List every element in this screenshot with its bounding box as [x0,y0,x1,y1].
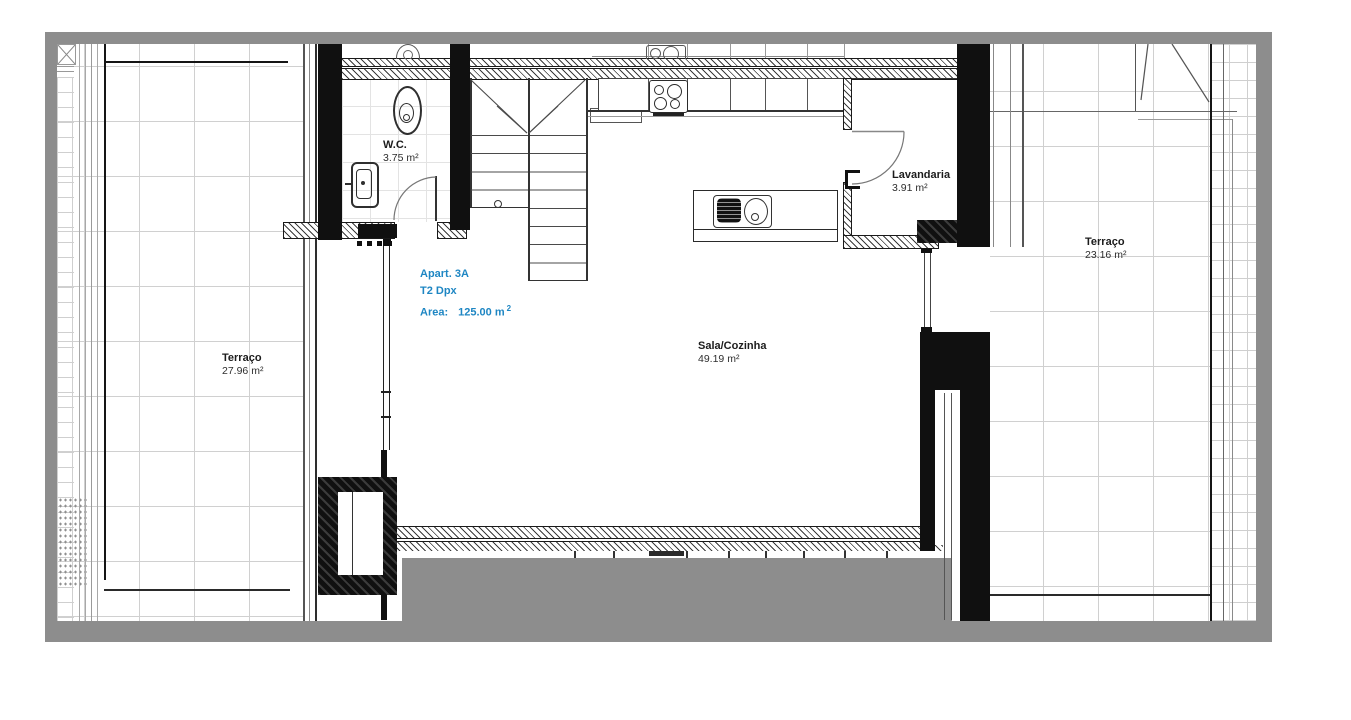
plan-lines-overlay [0,0,1351,720]
apartment-type: T2 Dpx [420,283,511,300]
room-name: Terraço [222,352,263,365]
room-label-sala: Sala/Cozinha 49.19 m² [698,340,766,366]
room-area: 49.19 m² [698,353,766,366]
room-area: 23.16 m² [1085,249,1126,262]
frame-bar-right [1256,32,1272,642]
apartment-label: Apart. 3A T2 Dpx Area:125.00 m2 [420,266,511,322]
frame-bar-left [45,32,57,642]
room-name: Sala/Cozinha [698,340,766,353]
room-label-terraco-right: Terraço 23.16 m² [1085,236,1126,262]
floorplan: W.C. 3.75 m² Lavandaria 3.91 m² Sala/Coz… [0,0,1351,720]
roof-funnel-line [1172,44,1209,102]
room-label-wc: W.C. 3.75 m² [383,139,419,165]
room-label-lavandaria: Lavandaria 3.91 m² [892,169,950,195]
frame-bar-bottom [45,621,1272,642]
stair-break-line [529,106,558,133]
room-area: 3.75 m² [383,152,419,165]
wc-door-arc [394,177,436,220]
roof-funnel-line [1141,44,1148,100]
apartment-area: Area:125.00 m2 [420,300,511,322]
frame-bar-top [45,32,1272,44]
room-area: 3.91 m² [892,182,950,195]
room-name: W.C. [383,139,419,152]
room-label-terraco-left: Terraço 27.96 m² [222,352,263,378]
stair-break-line [497,106,527,133]
room-area: 27.96 m² [222,365,263,378]
apartment-name: Apart. 3A [420,266,511,283]
room-name: Lavandaria [892,169,950,182]
room-name: Terraço [1085,236,1126,249]
